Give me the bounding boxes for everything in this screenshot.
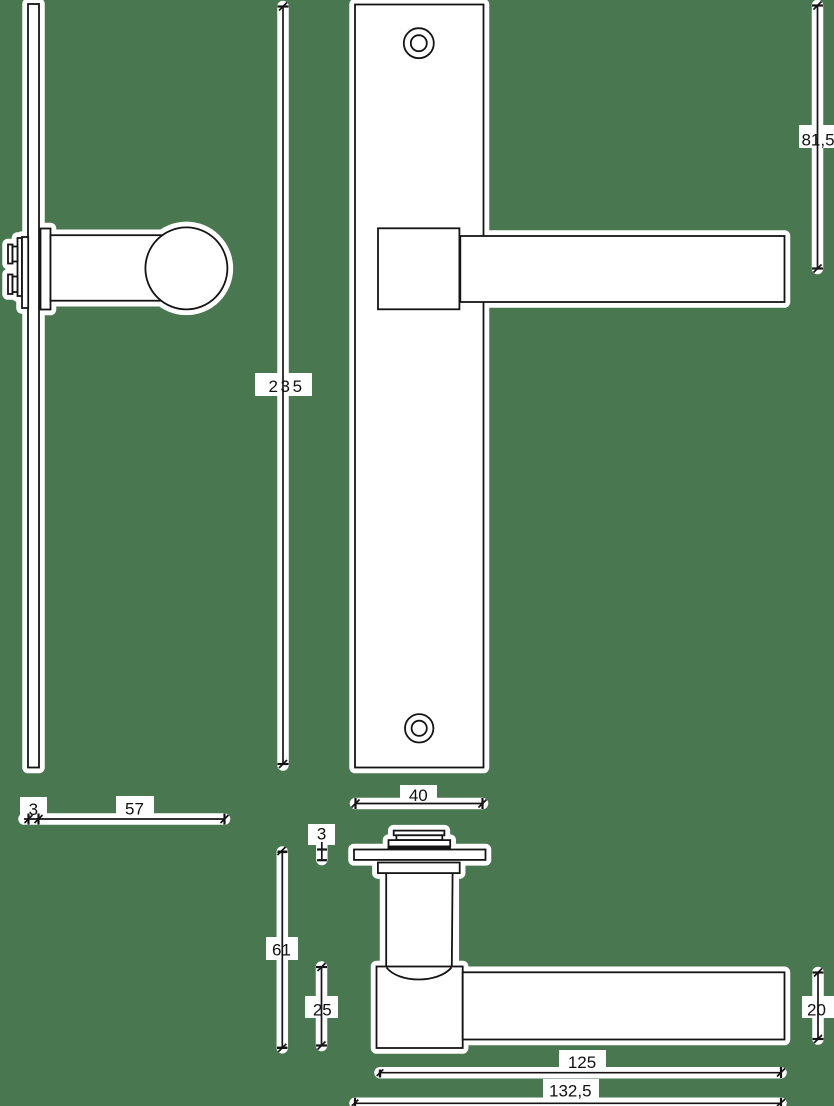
svg-text:3: 3 [29,800,38,819]
svg-text:235: 235 [269,377,305,396]
svg-text:25: 25 [313,1000,332,1019]
svg-text:20: 20 [807,1000,826,1019]
svg-text:81,5: 81,5 [801,131,834,150]
svg-text:132,5: 132,5 [549,1081,592,1100]
svg-text:125: 125 [568,1053,596,1072]
svg-text:57: 57 [125,800,144,819]
svg-text:61: 61 [272,941,291,960]
svg-text:3: 3 [317,825,326,844]
svg-text:40: 40 [409,786,428,805]
